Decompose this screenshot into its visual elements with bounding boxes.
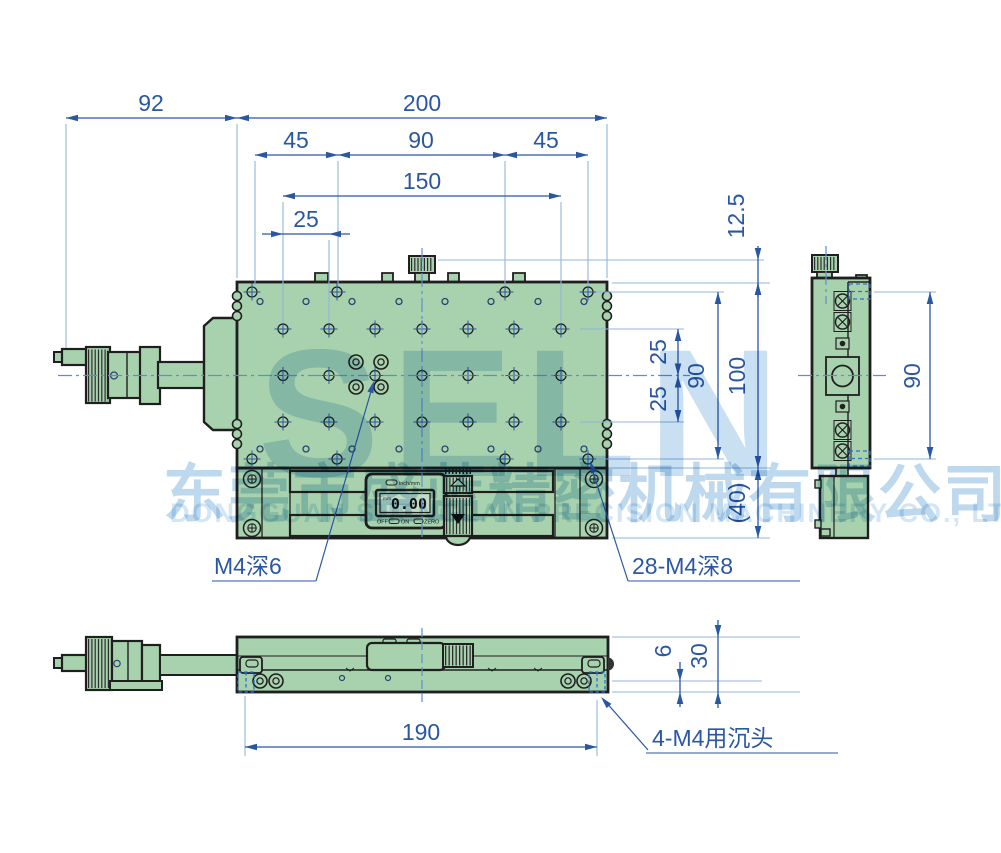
dim-90-mid: 90	[408, 127, 434, 153]
slider-knob-front	[367, 639, 473, 670]
technical-drawing: inch/mm mm 0.00 OFF ON ZERO	[0, 0, 1001, 853]
dim-200: 200	[403, 90, 441, 116]
top-view: inch/mm mm 0.00 OFF ON ZERO	[54, 248, 690, 545]
label-m4-depth6: M4深6	[214, 553, 282, 579]
dim-45-left: 45	[283, 127, 309, 153]
caliper-zero-label: ZERO	[424, 520, 440, 526]
dim-150: 150	[403, 168, 441, 194]
drawing-canvas: inch/mm mm 0.00 OFF ON ZERO	[0, 0, 1001, 853]
dim-25-row-upper: 25	[645, 339, 671, 365]
micrometer-head-front	[54, 637, 237, 690]
caliper-on-label: ON	[401, 520, 409, 526]
side-view	[798, 246, 886, 538]
adjust-screw-tip	[608, 658, 614, 671]
dim-12-5: 12.5	[723, 194, 749, 239]
dim-side-90: 90	[899, 363, 925, 389]
dim-90-rows: 90	[683, 363, 709, 389]
dim-25-row-lower: 25	[645, 386, 671, 412]
dim-6: 6	[650, 645, 676, 658]
dim-30: 30	[686, 643, 712, 669]
caliper-unit-label: mm	[383, 497, 391, 502]
dim-190: 190	[402, 719, 440, 745]
dim-45-right: 45	[533, 127, 559, 153]
caliper-off-label: OFF	[377, 520, 389, 526]
thumb-roller	[444, 476, 472, 545]
dim-92: 92	[138, 90, 164, 116]
dim-25-col: 25	[293, 206, 319, 232]
side-base	[815, 468, 868, 538]
caliper-mode-label: inch/mm	[399, 481, 420, 487]
dim-40: (40)	[724, 483, 750, 524]
dim-100: 100	[724, 357, 750, 395]
front-view	[54, 628, 614, 704]
label-4-m4-countersunk: 4-M4用沉头	[652, 725, 773, 751]
micrometer-head-plan	[54, 318, 237, 430]
label-28-m4-depth8: 28-M4深8	[632, 553, 733, 579]
